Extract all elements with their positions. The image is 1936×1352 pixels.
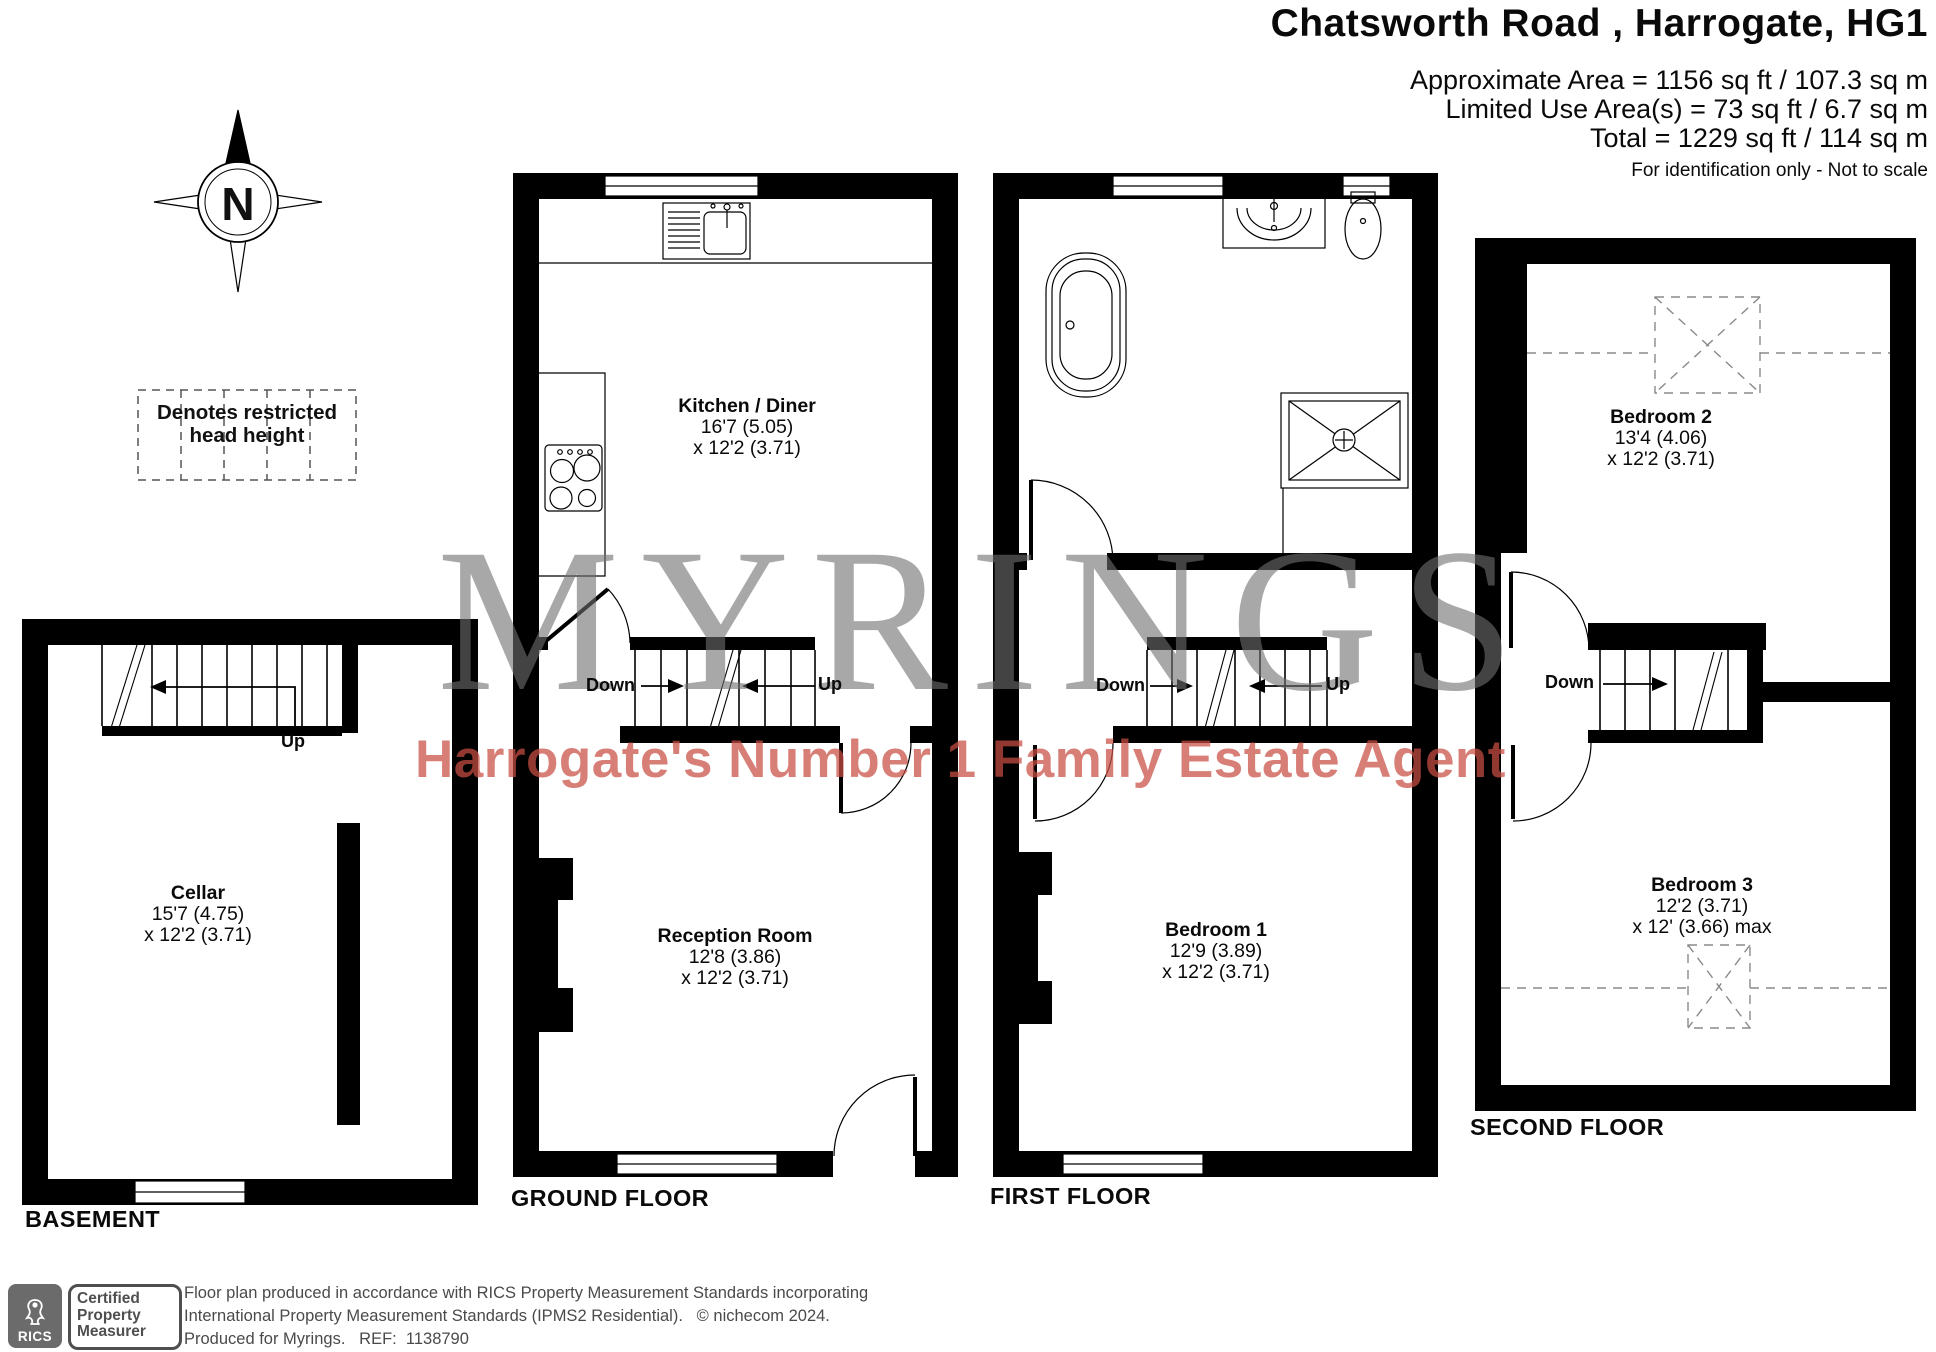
page-title: Chatsworth Road , Harrogate, HG1 <box>1271 2 1928 46</box>
room-label-kitchen-diner: Kitchen / Diner 16'7 (5.05) x 12'2 (3.71… <box>632 396 862 459</box>
ground-fireplace <box>558 900 573 988</box>
room-label-cellar: Cellar 15'7 (4.75) x 12'2 (3.71) <box>83 883 313 946</box>
header: Chatsworth Road , Harrogate, HG1 Approxi… <box>1271 2 1928 182</box>
toilet <box>1345 192 1381 259</box>
footer-line-2: International Property Measurement Stand… <box>184 1305 944 1328</box>
wash-basin <box>1223 198 1325 248</box>
ground-down-label: Down <box>586 675 635 696</box>
approximate-area: Approximate Area = 1156 sq ft / 107.3 sq… <box>1271 66 1928 95</box>
first-down-label: Down <box>1096 675 1145 696</box>
first-up-label: Up <box>1326 674 1350 695</box>
room-label-reception: Reception Room 12'8 (3.86) x 12'2 (3.71) <box>620 926 850 989</box>
rics-lion-icon <box>20 1297 50 1329</box>
footer-disclaimer: Floor plan produced in accordance with R… <box>184 1282 944 1352</box>
first-floor-label: FIRST FLOOR <box>990 1183 1151 1210</box>
basement-up-label: Up <box>281 731 305 752</box>
first-fireplace <box>1038 895 1052 981</box>
second-floor-plan <box>1475 238 1916 1111</box>
watermark-tagline: Harrogate's Number 1 Family Estate Agent <box>415 729 1506 790</box>
floorplan-page: MYRINGS Harrogate's Number 1 Family Esta… <box>0 0 1936 1352</box>
compass-north-label: N <box>214 177 262 231</box>
rics-wordmark: RICS <box>18 1329 52 1344</box>
ground-up-label: Up <box>818 674 842 695</box>
restricted-height-legend-label: Denotes restricted head height <box>138 401 356 447</box>
footer-line-3: Produced for Myrings. REF: 1138790 <box>184 1328 944 1351</box>
limited-use-area: Limited Use Area(s) = 73 sq ft / 6.7 sq … <box>1271 95 1928 124</box>
disclaimer-note: For identification only - Not to scale <box>1271 160 1928 182</box>
room-label-bedroom2: Bedroom 2 13'4 (4.06) x 12'2 (3.71) <box>1546 407 1776 470</box>
basement-stairs <box>102 645 327 731</box>
total-area: Total = 1229 sq ft / 114 sq m <box>1271 124 1928 153</box>
room-label-bedroom3: Bedroom 3 12'2 (3.71) x 12' (3.66) max <box>1587 875 1817 938</box>
footer-line-1: Floor plan produced in accordance with R… <box>184 1282 944 1305</box>
basement-window <box>135 1181 245 1203</box>
rics-logo: RICS <box>8 1284 62 1348</box>
room-label-bedroom1: Bedroom 1 12'9 (3.89) x 12'2 (3.71) <box>1101 920 1331 983</box>
certified-property-measurer-badge: Certified Property Measurer <box>68 1284 182 1350</box>
second-stairs <box>1600 650 1728 730</box>
bathtub <box>1046 253 1126 397</box>
ground-floor-label: GROUND FLOOR <box>511 1185 709 1212</box>
basement-floor-label: BASEMENT <box>25 1206 160 1233</box>
second-floor-label: SECOND FLOOR <box>1470 1114 1664 1141</box>
kitchen-sink <box>539 203 932 263</box>
second-down-label: Down <box>1545 672 1594 693</box>
